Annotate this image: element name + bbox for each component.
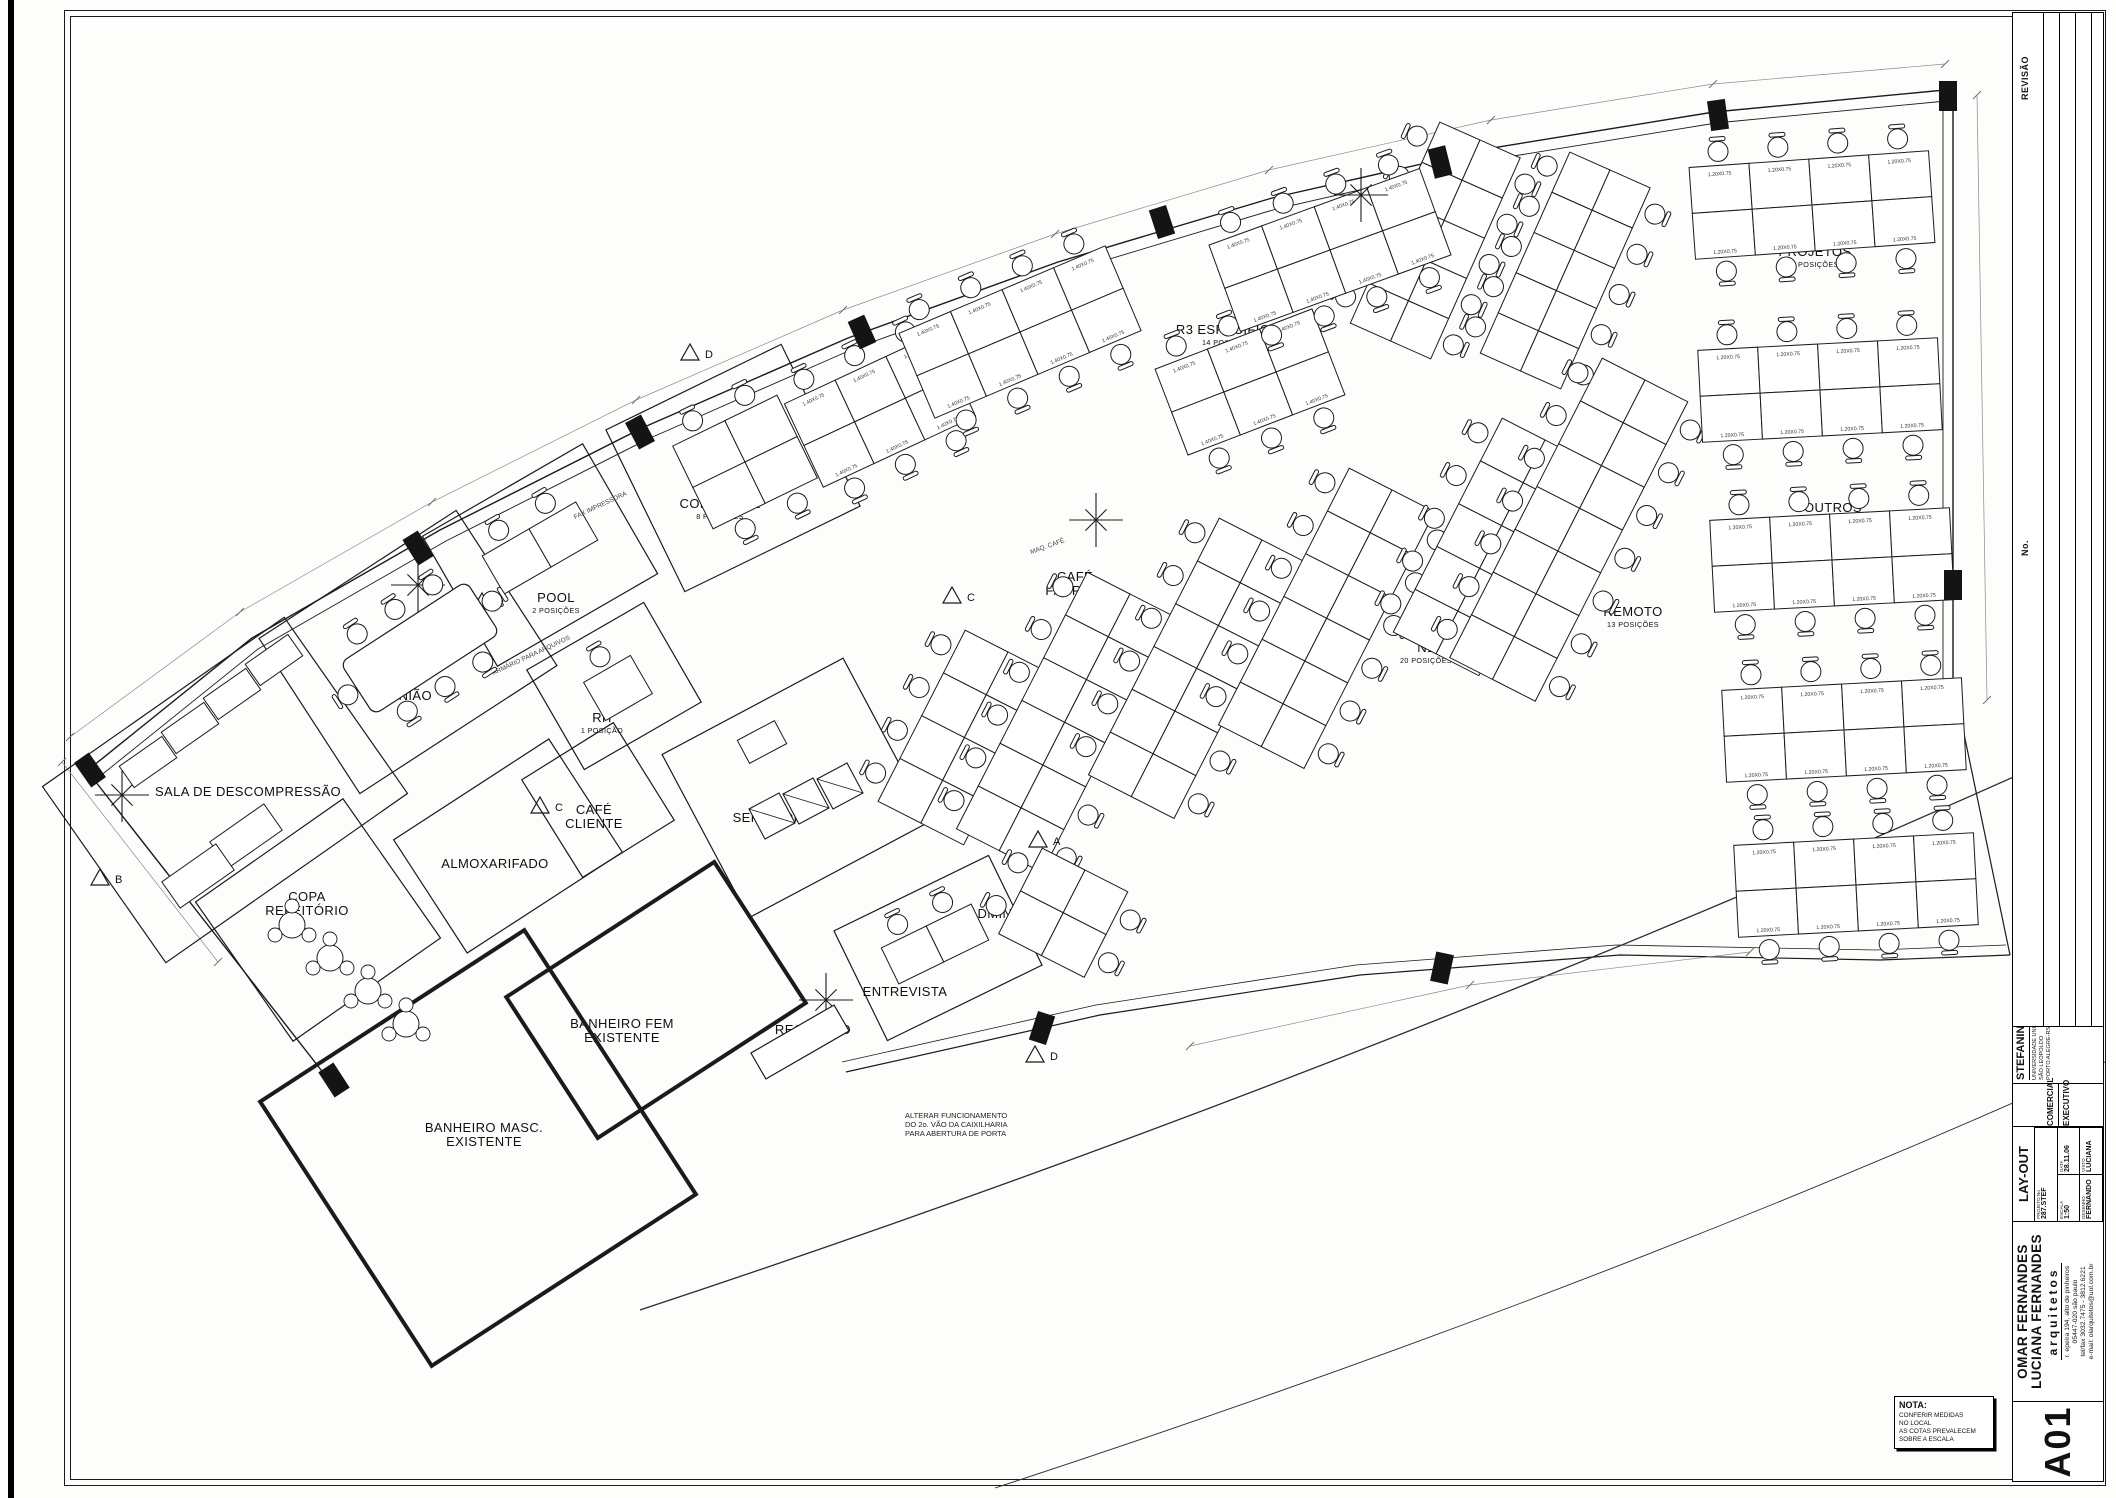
chair-icon: [1358, 655, 1389, 684]
chair-icon: [1056, 363, 1084, 393]
revision-divider: [2075, 13, 2076, 1026]
chair-icon: [1776, 317, 1797, 343]
column-icon: [625, 415, 655, 450]
chair-icon: [1867, 778, 1888, 804]
chair-icon: [1439, 460, 1470, 489]
chair-icon: [1117, 907, 1148, 936]
desk-size-label: 1.20X0.75: [1936, 918, 1960, 925]
chair-icon: [1887, 124, 1909, 150]
chair-icon: [882, 907, 911, 938]
firm-name: OMAR FERNANDES: [2016, 1222, 2030, 1401]
chair-icon: [1735, 614, 1756, 640]
room-label-pool: POOL2 POSIÇÕES: [532, 590, 580, 615]
chair-icon: [1216, 205, 1243, 235]
chair-icon: [1476, 251, 1507, 279]
room-label-cafe-cliente: CAFÉCLIENTE: [565, 802, 623, 831]
column-icon: [1939, 81, 1957, 111]
furniture-label: ARMÁRIO PARA ARQUIVOS: [491, 632, 572, 676]
chair-icon: [927, 885, 956, 916]
desk-size-label: 1.20X0.75: [1900, 423, 1924, 430]
section-marker-c: C: [531, 797, 563, 814]
field-value: 28.11.06: [2064, 1130, 2071, 1172]
nota-line: SOBRE A ESCALA: [1899, 1436, 1989, 1444]
nota-title: NOTA:: [1899, 1400, 1989, 1410]
chair-icon: [880, 715, 911, 744]
desk-size-label: 1.20X0.75: [1920, 685, 1944, 692]
chair-icon: [1156, 560, 1187, 589]
room-cafe-cliente: [522, 723, 675, 878]
chair-icon: [1206, 445, 1233, 475]
chair-icon: [1588, 321, 1619, 349]
room-label-sala-descompressao: SALA DE DESCOMPRESSÃO: [155, 784, 341, 799]
chair-icon: [1836, 314, 1857, 340]
dimension-tick: [236, 608, 244, 616]
dimension-line: [1977, 95, 1987, 700]
room-label-banheiro-fem: BANHEIRO FEMEXISTENTE: [570, 1016, 674, 1045]
chair-icon: [1308, 467, 1339, 496]
chair-icon: [1568, 630, 1599, 659]
desk-size-label: 1.20X0.75: [1876, 921, 1900, 928]
firm-name: LUCIANA FERNANDES: [2030, 1222, 2044, 1401]
section-marker-d: D: [681, 344, 713, 361]
chair-icon: [379, 592, 409, 623]
chair-icon: [1908, 480, 1929, 506]
sofa: [203, 668, 261, 719]
desk-grid-entrevista: [869, 878, 989, 983]
chair-icon: [1795, 611, 1816, 637]
chair-icon: [1633, 502, 1664, 531]
column-icon: [1029, 1011, 1055, 1045]
chair-icon: [902, 672, 933, 701]
column-icon: [74, 753, 106, 788]
revision-col-no: No.: [2020, 540, 2030, 556]
client-block: COMERCIAL EXECUTIVO STEFANINI UNIVERSIDA…: [2013, 1026, 2103, 1126]
column-icon: [1944, 570, 1962, 600]
desk-size-label: 1.20X0.75: [1932, 840, 1956, 847]
section-letter: B: [115, 874, 122, 886]
column-icon: [318, 1063, 349, 1098]
chair-icon: [729, 378, 758, 409]
chair-icon: [1440, 332, 1471, 360]
chair-icon: [431, 673, 461, 704]
chair-icon: [784, 490, 813, 521]
furniture-label: FAX IMPRESSORA: [573, 490, 629, 521]
desk-grid-pool: [468, 477, 598, 594]
desk-size-label: 1.20X0.75: [1780, 429, 1804, 436]
nota-line: AS COTAS PREVALECEM: [1899, 1428, 1989, 1436]
chair-icon: [1812, 812, 1833, 838]
sofa: [245, 634, 303, 685]
chair-icon: [1896, 310, 1917, 336]
chair-icon: [1827, 128, 1849, 154]
star-icon: [1069, 493, 1123, 547]
desk-size-label: 1.20X0.75: [1812, 846, 1836, 853]
floor-plan: SALA DE DESCOMPRESSÃOCOPAREFEITÓRIOREUNI…: [0, 0, 2116, 1498]
desk-size-label: 1.20X0.75: [1860, 688, 1884, 695]
desk-size-label: 1.20X0.75: [1912, 593, 1936, 600]
chair-icon: [1546, 673, 1577, 702]
revision-divider: [2059, 13, 2060, 1026]
nota-box: NOTA: CONFERIR MEDIDAS NO LOCAL AS COTAS…: [1894, 1396, 1994, 1449]
revision-col-revisao: REVISÃO: [2020, 56, 2030, 100]
desk-size-label: 1.20X0.75: [1836, 348, 1860, 355]
desk-size-label: 1.20X0.75: [1788, 521, 1812, 528]
revision-divider: [2043, 13, 2044, 1026]
chair-icon: [1740, 660, 1761, 686]
chair-icon: [956, 270, 984, 300]
desk-size-label: 1.20X0.75: [1740, 694, 1764, 701]
chair-icon: [1759, 939, 1780, 965]
dimension-tick: [1186, 1042, 1194, 1050]
desk-size-label: 1.20X0.75: [1716, 354, 1740, 361]
desk-size-label: 1.20X0.75: [1924, 763, 1948, 770]
firm-address: r. epeira 194, alto de pinheiros 05447-0…: [2064, 1222, 2096, 1401]
chair-icon: [1767, 132, 1789, 158]
desk-size-label: 1.20X0.75: [1864, 766, 1888, 773]
chair-icon: [1716, 320, 1737, 346]
room-label-almoxarifado: ALMOXARIFADO: [441, 856, 548, 871]
desk-size-label: 1.20X0.75: [1804, 769, 1828, 776]
dimension-tick: [632, 396, 640, 404]
desk-size-label: 1.20X0.75: [1728, 524, 1752, 531]
firm-address-line: tel/fax 3032.7475 - 3812.6221: [2080, 1222, 2088, 1401]
chair-icon: [892, 451, 920, 482]
chair-icon: [1642, 201, 1673, 229]
revision-divider: [2091, 13, 2092, 1026]
chair-icon: [841, 475, 869, 506]
sheet-info-block: LAY-OUT PROJETO No 287.STEF ESCALA 1:50 …: [2013, 1126, 2103, 1221]
sofa: [161, 702, 219, 753]
chair-icon: [1860, 654, 1881, 680]
chair-icon: [1915, 605, 1936, 631]
dimension-tick: [428, 498, 436, 506]
firm-address-line: 05447-020 são paulo: [2072, 1222, 2080, 1401]
chair-icon: [1075, 802, 1106, 831]
chair-icon: [1872, 809, 1893, 835]
firm-address-line: e-mail: olarquitetos@uol.com.br: [2088, 1222, 2096, 1401]
chair-icon: [1939, 930, 1960, 956]
chair-icon: [1752, 815, 1773, 841]
chair-icon: [1458, 312, 1489, 340]
wall: [842, 945, 2006, 1062]
section-marker-d: D: [1026, 1046, 1058, 1063]
battery-cabinet: [737, 721, 786, 764]
chair-icon: [1848, 484, 1869, 510]
desk-size-label: 1.20X0.75: [1800, 691, 1824, 698]
column-icon: [1430, 951, 1454, 984]
chair-icon: [1819, 936, 1840, 962]
dimension-tick: [1265, 166, 1273, 174]
desk-size-label: 1.20X0.75: [1732, 602, 1756, 609]
chair-icon: [1321, 167, 1348, 197]
chair-icon: [584, 639, 614, 670]
room-banheiro-fem: [506, 862, 805, 1138]
project-category: COMERCIAL: [2043, 1084, 2059, 1126]
desk-size-label: 1.20X0.75: [1752, 849, 1776, 856]
desk-grid-rh: [569, 631, 652, 721]
dimension-tick: [214, 958, 222, 966]
chair-icon: [1611, 545, 1642, 574]
sheet-code-box: A01: [2013, 1401, 2103, 1481]
chair-icon: [1707, 136, 1729, 162]
drawing-sheet: SALA DE DESCOMPRESSÃOCOPAREFEITÓRIOREUNI…: [0, 0, 2116, 1498]
project-phase: EXECUTIVO: [2059, 1084, 2074, 1126]
section-letter: C: [555, 802, 563, 814]
chair-icon: [1807, 781, 1828, 807]
chair-icon: [1512, 171, 1543, 199]
chair-icon: [1311, 405, 1338, 435]
chair-icon: [1895, 248, 1917, 274]
desk-size-label: 1.20X0.75: [1896, 345, 1920, 352]
chair-icon: [1207, 748, 1238, 777]
chair-icon: [677, 403, 706, 434]
desk-size-label: 1.20X0.75: [1872, 843, 1896, 850]
firm-block: OMAR FERNANDES LUCIANA FERNANDES arquite…: [2013, 1221, 2103, 1401]
chair-icon: [1606, 281, 1637, 309]
dimension-tick: [839, 306, 847, 314]
field-escala: ESCALA 1:50: [2058, 1174, 2081, 1221]
chair-icon: [1855, 608, 1876, 634]
field-desenho: DESENHO FERNANDO: [2080, 1174, 2103, 1221]
section-marker-c: C: [943, 587, 975, 604]
chair-icon: [1400, 121, 1431, 149]
nota-line: NO LOCAL: [1899, 1420, 1989, 1428]
room-label-entrevista: ENTREVISTA: [863, 984, 948, 999]
nota-line: CONFERIR MEDIDAS: [1899, 1412, 1989, 1420]
chair-icon: [1835, 252, 1857, 278]
chair-icon: [1624, 241, 1655, 269]
chair-icon: [1286, 510, 1317, 539]
chair-icon: [1716, 260, 1738, 286]
chair-icon: [1315, 740, 1346, 769]
desk-size-label: 1.20X0.75: [1776, 351, 1800, 358]
section-letter: A: [1053, 836, 1061, 848]
column-icon: [1707, 99, 1729, 131]
chair-icon: [1259, 425, 1286, 455]
desk-size-label: 1.20X0.75: [1852, 596, 1876, 603]
chair-icon: [1723, 444, 1744, 470]
desk-size-label: 1.20X0.75: [1848, 518, 1872, 525]
field-value: 287.STEF: [2041, 1130, 2048, 1219]
section-letter: D: [705, 349, 713, 361]
chair-icon: [1005, 385, 1033, 415]
chair-icon: [924, 629, 955, 658]
chair-icon: [1800, 657, 1821, 683]
chair-icon: [1747, 784, 1768, 810]
field-value: LUCIANA: [2086, 1130, 2093, 1172]
desk-size-label: 1.20X0.75: [1792, 599, 1816, 606]
desk-size-label: 1.20X0.75: [1756, 927, 1780, 934]
chair-icon: [858, 758, 889, 787]
chair-icon: [904, 292, 932, 322]
chair-icon: [1458, 291, 1489, 319]
firm-address-line: r. epeira 194, alto de pinheiros: [2064, 1222, 2072, 1401]
dimension-tick: [66, 733, 74, 741]
desk-size-label: 1.20X0.75: [1840, 426, 1864, 433]
reception-counter: [751, 1005, 849, 1079]
desk-size-label: 1.20X0.75: [1908, 515, 1932, 522]
chair-icon: [1530, 151, 1561, 179]
chair-icon: [1539, 400, 1570, 429]
firm-suffix: arquitetos: [2046, 1264, 2062, 1360]
chair-icon: [1512, 191, 1543, 219]
sheet-title: LAY-OUT: [2013, 1127, 2035, 1221]
chair-icon: [1728, 490, 1749, 516]
chair-icon: [1095, 949, 1126, 978]
field-value: 1:50: [2064, 1177, 2071, 1219]
chair-icon: [1185, 790, 1216, 819]
client-location-line: UNIVERSIDADE UNISINOS: [2032, 1026, 2039, 1080]
chair-icon: [1476, 272, 1507, 300]
chair-icon: [1903, 435, 1924, 461]
chair-icon: [1927, 775, 1948, 801]
chair-icon: [1776, 256, 1798, 282]
chair-icon: [1879, 933, 1900, 959]
section-letter: C: [967, 592, 975, 604]
dimension-tick: [1487, 116, 1495, 124]
client-location-line: SÃO LEOPOLDO: [2039, 1026, 2046, 1080]
chair-icon: [1920, 650, 1941, 676]
desk-grid-outros-3: 1.20X0.751.20X0.751.20X0.751.20X0.751.20…: [1720, 649, 1967, 810]
chair-icon: [1655, 459, 1686, 488]
room-label-copa-refeitorio: COPAREFEITÓRIO: [265, 889, 348, 918]
desk-grid-outros-1: 1.20X0.751.20X0.751.20X0.751.20X0.751.20…: [1696, 309, 1943, 470]
chair-icon: [1024, 614, 1055, 643]
desk-size-label: 1.20X0.75: [1744, 772, 1768, 779]
client-name: STEFANINI: [2015, 1026, 2030, 1080]
chair-icon: [1269, 186, 1296, 216]
field-value: FERNANDO: [2086, 1177, 2093, 1219]
field-projeto: PROJETO No 287.STEF: [2035, 1127, 2058, 1221]
client-location: UNIVERSIDADE UNISINOS SÃO LEOPOLDO PORTO…: [2032, 1026, 2053, 1080]
chair-icon: [1843, 438, 1864, 464]
chair-icon: [1932, 805, 1953, 831]
chair-icon: [1178, 517, 1209, 546]
chair-icon: [1783, 441, 1804, 467]
furniture-label: MAQ. CAFÉ: [1029, 535, 1066, 556]
dimension-tick: [1051, 230, 1059, 238]
plan-note: ALTERAR FUNCIONAMENTODO 2o. VÃO DA CAIXI…: [905, 1111, 1008, 1138]
chair-icon: [1007, 249, 1035, 279]
sofa: [119, 736, 177, 787]
chair-icon: [416, 567, 446, 598]
revision-table: No. REVISÃO DATA: [2013, 13, 2103, 1026]
chair-icon: [341, 616, 371, 647]
wall: [846, 955, 2010, 1072]
client-location-line: PORTO ALEGRE-RS: [2046, 1026, 2053, 1080]
desk-size-label: 1.20X0.75: [1816, 924, 1840, 931]
desk-grid-outros-4: 1.20X0.751.20X0.751.20X0.751.20X0.751.20…: [1732, 804, 1979, 965]
chair-icon: [529, 486, 559, 517]
field-data: DATA 28.11.06: [2058, 1127, 2081, 1174]
desk-size-label: 1.20X0.75: [1720, 432, 1744, 439]
section-letter: D: [1050, 1051, 1058, 1063]
sheet-code: A01: [2037, 1405, 2079, 1477]
chair-icon: [1788, 487, 1809, 513]
room-label-banheiro-masc: BANHEIRO MASC.EXISTENTE: [425, 1120, 543, 1149]
chair-icon: [1494, 211, 1525, 239]
chair-icon: [1494, 231, 1525, 259]
chair-icon: [483, 513, 513, 544]
field-visto: VISTO LUCIANA: [2080, 1127, 2103, 1174]
chair-icon: [1108, 341, 1136, 371]
dimension-tick: [58, 758, 66, 766]
chair-icon: [1461, 417, 1492, 446]
chair-icon: [1337, 698, 1368, 727]
